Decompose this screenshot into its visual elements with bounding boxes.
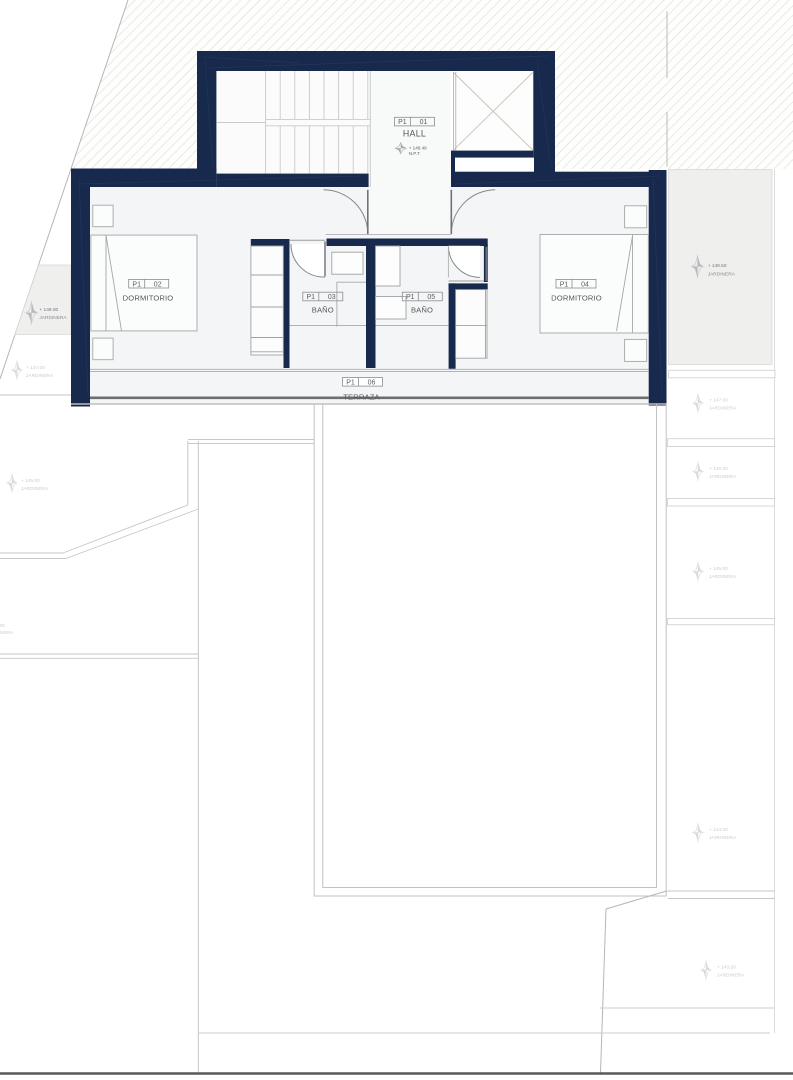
svg-text:05: 05 <box>427 294 435 301</box>
svg-text:+ 147.00: + 147.00 <box>709 398 728 404</box>
svg-text:JARDINERA: JARDINERA <box>717 973 745 979</box>
svg-text:JARDINERA: JARDINERA <box>709 474 737 480</box>
svg-text:01: 01 <box>420 119 428 126</box>
svg-text:+ 143.20: + 143.20 <box>717 965 736 971</box>
svg-text:04: 04 <box>581 281 589 288</box>
svg-text:+ 148.48: + 148.48 <box>409 145 427 150</box>
svg-text:+ 148.00: + 148.00 <box>39 307 58 313</box>
svg-text:+ 147.00: + 147.00 <box>26 365 45 371</box>
svg-text:+ 145.00: + 145.00 <box>21 478 40 484</box>
svg-text:JARDINERA: JARDINERA <box>709 835 737 841</box>
svg-text:P1: P1 <box>346 379 355 386</box>
svg-text:+ 148.50: + 148.50 <box>708 263 727 269</box>
svg-text:JARDINERA: JARDINERA <box>708 272 736 278</box>
svg-text:BAÑO: BAÑO <box>411 306 433 315</box>
svg-text:DORMITORIO: DORMITORIO <box>551 294 602 303</box>
svg-text:P1: P1 <box>132 281 141 288</box>
svg-text:DORMITORIO: DORMITORIO <box>123 294 174 303</box>
svg-text:JARDINERA: JARDINERA <box>709 574 737 580</box>
svg-text:TERRAZA: TERRAZA <box>343 392 380 401</box>
svg-text:P1: P1 <box>406 294 415 301</box>
svg-text:02: 02 <box>154 281 162 288</box>
svg-text:P1: P1 <box>560 281 569 288</box>
svg-text:N.P.T: N.P.T <box>409 151 420 156</box>
svg-text:+ 144.00: + 144.00 <box>709 827 728 833</box>
svg-text:BAÑO: BAÑO <box>312 306 334 315</box>
svg-text:JARDINERA: JARDINERA <box>21 486 49 492</box>
svg-text:HALL: HALL <box>403 129 426 139</box>
svg-text:JARDINERA: JARDINERA <box>26 373 54 379</box>
svg-text:P1: P1 <box>307 294 316 301</box>
svg-text:+ 144.00: + 144.00 <box>0 623 5 629</box>
svg-text:03: 03 <box>328 294 336 301</box>
svg-text:+ 145.00: + 145.00 <box>709 566 728 572</box>
svg-text:P1: P1 <box>398 119 407 126</box>
svg-text:JARDINERA: JARDINERA <box>39 315 67 321</box>
svg-text:JARDINERA: JARDINERA <box>0 630 14 636</box>
svg-text:+ 146.00: + 146.00 <box>709 466 728 472</box>
svg-text:JARDINERA: JARDINERA <box>709 406 737 412</box>
svg-text:06: 06 <box>368 379 376 386</box>
